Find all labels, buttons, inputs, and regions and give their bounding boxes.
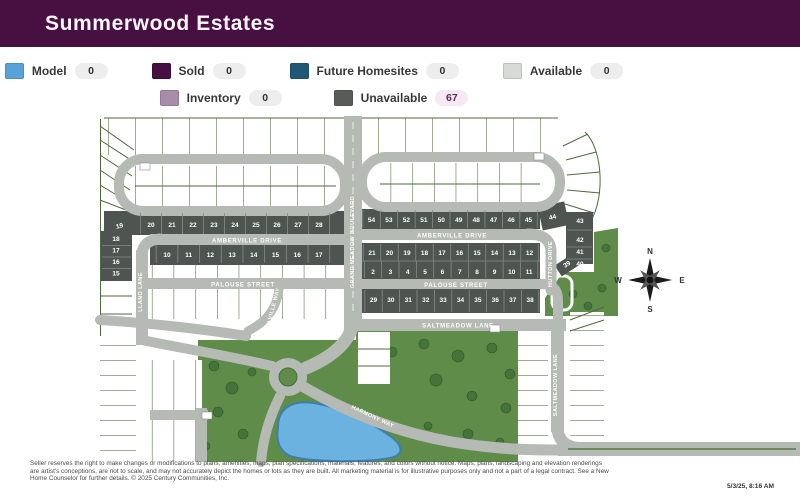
site-plan-map: AMBERVILLE DRIVE AMBERVILLE DRIVE PALOUS… bbox=[0, 0, 800, 500]
lot-number: 11 bbox=[526, 269, 533, 276]
compass-west-label: W bbox=[614, 276, 622, 285]
lot-number: 14 bbox=[250, 252, 258, 259]
lot-number: 40 bbox=[576, 261, 584, 268]
lot-number: 35 bbox=[474, 297, 482, 304]
lot-number: 10 bbox=[508, 269, 516, 276]
street-label-saltmeadow-east: SALTMEADOW LANE bbox=[422, 324, 494, 330]
compass-north-label: N bbox=[647, 247, 653, 256]
lot-number: 52 bbox=[403, 217, 411, 224]
lot-number: 46 bbox=[507, 217, 515, 224]
lot-number: 7 bbox=[458, 269, 462, 276]
lot-number: 42 bbox=[576, 237, 584, 244]
lot-number: 23 bbox=[210, 222, 218, 229]
lot-number: 4 bbox=[406, 269, 410, 276]
lot-number: 2 bbox=[371, 269, 375, 276]
lot-number: 54 bbox=[368, 217, 376, 224]
lot-number: 18 bbox=[112, 236, 120, 243]
lot-number: 12 bbox=[207, 252, 215, 259]
lot-number: 17 bbox=[438, 250, 446, 257]
site-map-page: Summerwood Estates Model 0 Sold 0 Future… bbox=[0, 0, 800, 500]
lot-number: 16 bbox=[294, 252, 302, 259]
lot-number: 38 bbox=[526, 297, 534, 304]
print-disclaimer: Seller reserves the right to make change… bbox=[30, 460, 775, 483]
lot-number: 21 bbox=[168, 222, 176, 229]
lot-number: 14 bbox=[491, 250, 499, 257]
lot-number: 16 bbox=[456, 250, 464, 257]
print-timestamp: 5/3/25, 8:16 AM bbox=[727, 483, 774, 490]
lot-number: 50 bbox=[438, 217, 446, 224]
lot-number: 13 bbox=[228, 252, 236, 259]
lot-number: 36 bbox=[492, 297, 500, 304]
lot-number: 15 bbox=[112, 271, 120, 278]
lot-number: 34 bbox=[457, 297, 465, 304]
lot-number: 21 bbox=[368, 250, 376, 257]
lot-number: 26 bbox=[273, 222, 281, 229]
lot-number: 18 bbox=[421, 250, 429, 257]
disclaimer-line: Home Counselor for further details. © 20… bbox=[30, 475, 775, 483]
lot-number: 48 bbox=[473, 217, 481, 224]
lot-number: 19 bbox=[403, 250, 411, 257]
lot-number: 33 bbox=[439, 297, 447, 304]
lot-number: 6 bbox=[441, 269, 445, 276]
street-label-palouse-east: PALOUSE STREET bbox=[424, 283, 488, 289]
lot-number: 45 bbox=[525, 217, 533, 224]
lot-number: 51 bbox=[420, 217, 428, 224]
lot-number: 5 bbox=[423, 269, 427, 276]
lot-number: 17 bbox=[315, 252, 323, 259]
lot-number: 15 bbox=[473, 250, 481, 257]
street-label-saltmeadow-south: SALTMEADOW LANE bbox=[553, 354, 559, 416]
lot-number: 17 bbox=[112, 248, 120, 255]
street-label-amberville-west: AMBERVILLE DRIVE bbox=[212, 239, 282, 245]
lot-number: 43 bbox=[576, 218, 584, 225]
street-label-hutton: HUTTON DRIVE bbox=[548, 241, 554, 287]
street-label-grand-meadow: GRAND MEADOW BOULEVARD bbox=[350, 196, 356, 288]
lot-number: 49 bbox=[455, 217, 463, 224]
lot-number: 16 bbox=[112, 259, 120, 266]
street-label-palouse-west: PALOUSE STREET bbox=[211, 283, 275, 289]
lot-number: 15 bbox=[272, 252, 280, 259]
lot-number: 8 bbox=[475, 269, 479, 276]
lot-number: 12 bbox=[526, 250, 534, 257]
lot-number: 10 bbox=[163, 252, 171, 259]
lot-number: 32 bbox=[422, 297, 430, 304]
lot-number: 11 bbox=[185, 252, 192, 259]
lot-number: 9 bbox=[493, 269, 497, 276]
lot-number: 37 bbox=[509, 297, 517, 304]
lot-number: 20 bbox=[386, 250, 394, 257]
lot-number: 53 bbox=[385, 217, 393, 224]
lot-number: 28 bbox=[315, 222, 323, 229]
compass-rose: N S E W bbox=[614, 247, 685, 314]
lot-number: 30 bbox=[387, 297, 395, 304]
lot-number: 31 bbox=[405, 297, 413, 304]
lot-number: 20 bbox=[147, 222, 155, 229]
lot-number: 22 bbox=[189, 222, 197, 229]
lot-number: 24 bbox=[231, 222, 239, 229]
lot-number: 41 bbox=[576, 249, 584, 256]
lot-number: 13 bbox=[508, 250, 516, 257]
lot-number: 3 bbox=[389, 269, 393, 276]
street-label-amberville-east: AMBERVILLE DRIVE bbox=[417, 234, 487, 240]
lot-number: 25 bbox=[252, 222, 260, 229]
street-label-llano: LLANO LANE bbox=[138, 272, 144, 311]
compass-east-label: E bbox=[679, 276, 685, 285]
compass-south-label: S bbox=[647, 305, 653, 314]
lot-number: 47 bbox=[490, 217, 498, 224]
disclaimer-line: Seller reserves the right to make change… bbox=[30, 460, 775, 468]
lot-number: 27 bbox=[294, 222, 302, 229]
lot-number: 29 bbox=[370, 297, 378, 304]
